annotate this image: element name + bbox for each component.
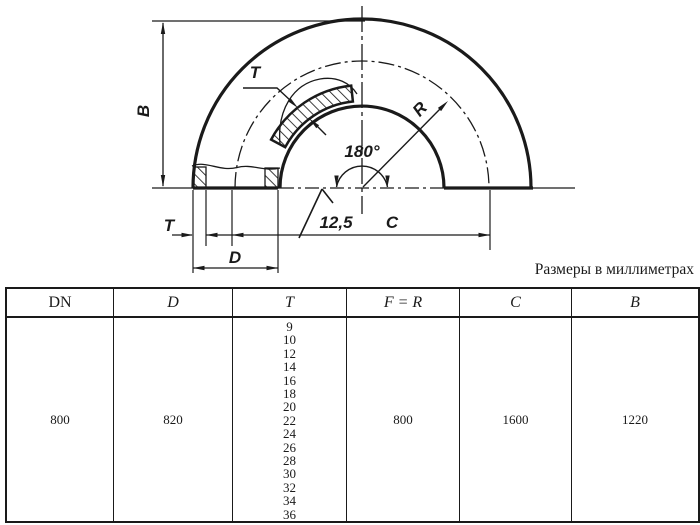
t-top-label: T xyxy=(250,63,262,82)
header-dn: DN xyxy=(7,289,114,316)
header-f-r: F = R xyxy=(347,289,460,316)
d-dim-arrow-left xyxy=(193,266,205,270)
c-dim-arrow-right xyxy=(479,233,491,237)
cell-t-values: 9 10 12 14 16 18 20 22 24 26 28 30 32 34… xyxy=(233,318,347,521)
angle-label: 180° xyxy=(344,142,379,161)
t-dim-arrow-right xyxy=(206,233,218,237)
cell-c: 1600 xyxy=(460,318,572,521)
dimension-table: DN D T F = R C B 800 820 9 10 12 14 16 1… xyxy=(5,287,700,523)
technical-drawing: B T 180° R 12,5 xyxy=(0,0,700,286)
table-header-row: DN D T F = R C B xyxy=(7,289,698,318)
units-caption: Размеры в миллиметрах xyxy=(535,261,694,279)
end-wall-hatch-left xyxy=(194,167,207,188)
cell-d: 820 xyxy=(114,318,233,521)
r-label: R xyxy=(409,98,432,120)
t-dim-arrow-left xyxy=(182,233,194,237)
c-label: C xyxy=(386,213,399,232)
d-label: D xyxy=(229,248,241,267)
b-arrow-up xyxy=(161,22,165,34)
t-arrow-outer xyxy=(288,98,298,108)
header-b: B xyxy=(572,289,698,316)
header-t: T xyxy=(233,289,347,316)
b-label: B xyxy=(134,105,153,117)
table-data-row: 800 820 9 10 12 14 16 18 20 22 24 26 28 … xyxy=(7,318,698,521)
cell-f-r: 800 xyxy=(347,318,460,521)
d-dim-arrow-right xyxy=(267,266,279,270)
cell-dn: 800 xyxy=(7,318,114,521)
t-arrow-inner-tail xyxy=(317,126,326,135)
end-wall-hatch-right xyxy=(265,168,278,188)
roughness-mark-short xyxy=(322,189,333,203)
standard-page: B T 180° R 12,5 xyxy=(0,0,700,525)
t-bottom-label: T xyxy=(164,216,176,235)
b-arrow-down xyxy=(161,175,165,187)
cell-b: 1220 xyxy=(572,318,698,521)
roughness-label: 12,5 xyxy=(319,213,353,232)
t-leader-line xyxy=(243,88,291,101)
header-c: C xyxy=(460,289,572,316)
header-d: D xyxy=(114,289,233,316)
c-dim-arrow-left xyxy=(232,233,244,237)
